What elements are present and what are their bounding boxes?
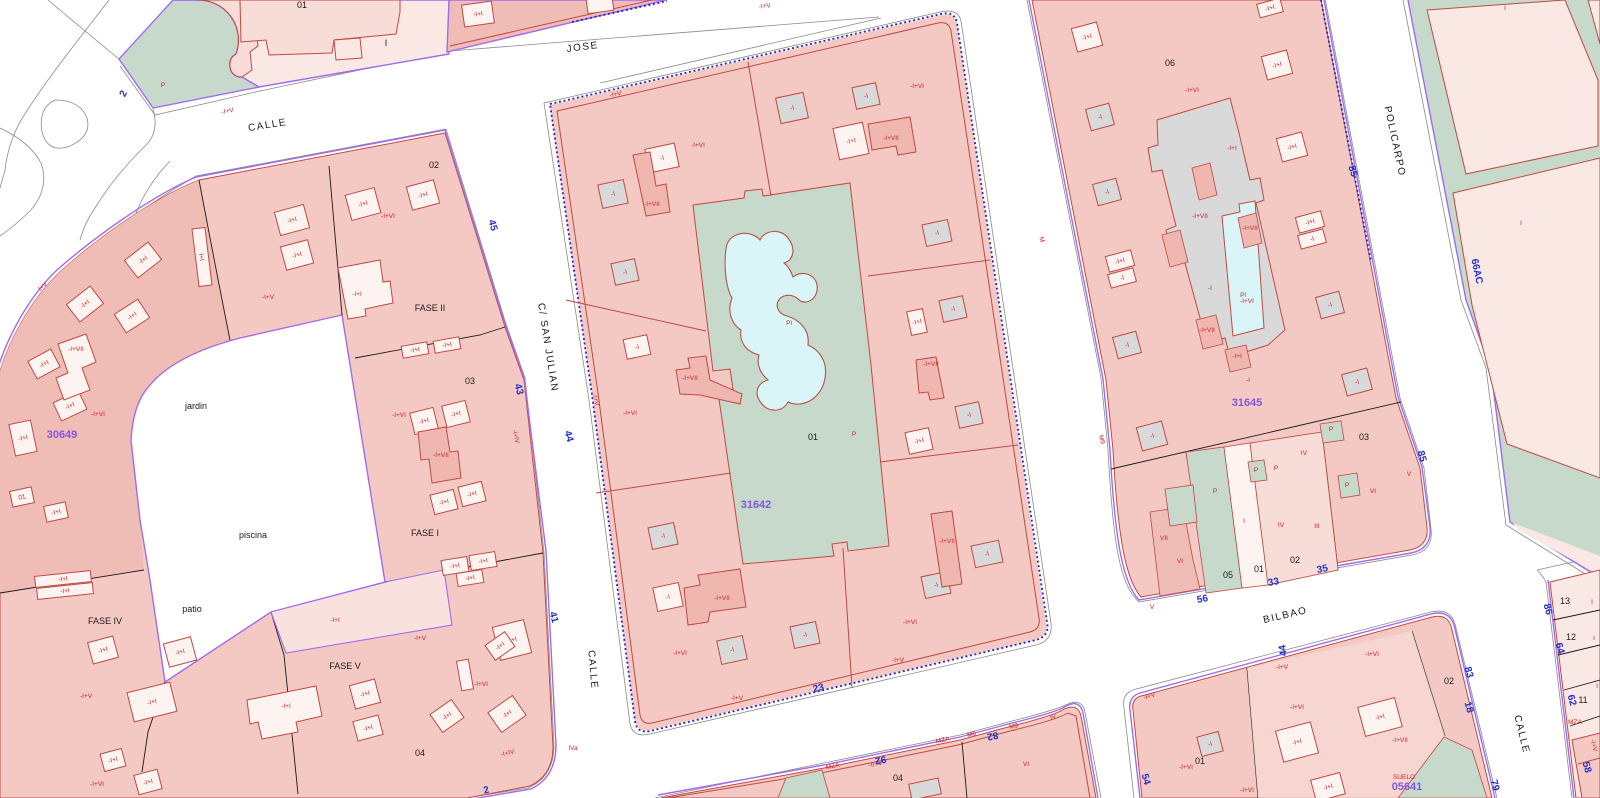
svg-text:-I+VI: -I+VI <box>1365 651 1379 658</box>
svg-text:FASE V: FASE V <box>329 661 361 671</box>
svg-text:04: 04 <box>893 773 903 783</box>
svg-text:-I+I: -I+I <box>330 617 340 624</box>
svg-text:-I+VI: -I+VI <box>1179 764 1193 771</box>
svg-text:02: 02 <box>1444 676 1454 686</box>
svg-text:04: 04 <box>415 748 425 758</box>
svg-text:05641: 05641 <box>1392 781 1423 793</box>
svg-text:-I+VI: -I+VI <box>381 213 395 220</box>
svg-text:-I+V: -I+V <box>262 294 275 301</box>
svg-text:31645: 31645 <box>1232 397 1263 409</box>
svg-text:02: 02 <box>429 160 439 170</box>
svg-text:-I+V: -I+V <box>892 657 905 664</box>
svg-text:-I+VII: -I+VII <box>433 452 449 459</box>
svg-text:piscina: piscina <box>239 530 267 540</box>
svg-text:P: P <box>1213 488 1217 495</box>
svg-text:P: P <box>1274 465 1278 472</box>
svg-text:IV: IV <box>1301 450 1308 457</box>
svg-text:-I+VII: -I+VII <box>883 135 899 142</box>
svg-text:-I+VI: -I+VI <box>903 619 917 626</box>
svg-text:-I+VI: -I+VI <box>1185 87 1199 94</box>
svg-text:01: 01 <box>1195 756 1205 766</box>
svg-text:VI: VI <box>1177 558 1183 565</box>
svg-text:P: P <box>1345 482 1349 489</box>
svg-text:01: 01 <box>1254 564 1264 574</box>
svg-text:MZA: MZA <box>1568 719 1582 726</box>
svg-text:12: 12 <box>1566 632 1576 642</box>
svg-text:I: I <box>1504 5 1506 12</box>
svg-text:FASE I: FASE I <box>411 528 439 538</box>
svg-text:01: 01 <box>808 432 818 442</box>
svg-text:I: I <box>1243 518 1245 525</box>
svg-text:-I+VII: -I+VII <box>68 346 84 353</box>
svg-text:I: I <box>1591 599 1593 606</box>
svg-text:-I+VII: -I+VII <box>714 595 730 602</box>
svg-text:I: I <box>385 38 388 48</box>
svg-text:-I+VI: -I+VI <box>1240 787 1254 794</box>
svg-text:-I+VII: -I+VII <box>939 538 955 545</box>
svg-text:-I+VI: -I+VI <box>623 410 637 417</box>
svg-text:-I+V: -I+V <box>731 695 744 702</box>
svg-text:-I+VII: -I+VII <box>1199 327 1215 334</box>
svg-text:-I+V: -I+V <box>80 693 93 700</box>
svg-text:I: I <box>1593 635 1595 642</box>
svg-text:P: P <box>852 431 856 438</box>
svg-text:-I: -I <box>1246 377 1250 384</box>
svg-text:P: P <box>161 82 165 89</box>
svg-text:-I+VII: -I+VII <box>1242 225 1258 232</box>
svg-text:III: III <box>1314 523 1320 530</box>
svg-text:-I+VI: -I+VI <box>673 650 687 657</box>
svg-text:-I+VI: -I+VI <box>1290 704 1304 711</box>
svg-text:-I+VI: -I+VI <box>90 781 104 788</box>
svg-text:-I+V: -I+V <box>1276 664 1289 671</box>
svg-text:I: I <box>1520 220 1522 227</box>
svg-text:jardin: jardin <box>184 401 207 411</box>
svg-text:VI: VI <box>1370 488 1376 495</box>
svg-text:P: P <box>1329 426 1333 433</box>
svg-text:Pl: Pl <box>1240 292 1246 299</box>
svg-text:patio: patio <box>182 604 202 614</box>
svg-text:VII: VII <box>1160 535 1168 542</box>
svg-text:31642: 31642 <box>741 499 772 511</box>
svg-text:30649: 30649 <box>47 429 78 441</box>
svg-text:-I+VII: -I+VII <box>644 201 660 208</box>
svg-text:-I+VII: -I+VII <box>1192 213 1208 220</box>
svg-text:-I+V: -I+V <box>414 635 427 642</box>
svg-text:11: 11 <box>1578 695 1587 705</box>
svg-text:P: P <box>1254 467 1258 474</box>
svg-text:-I+I: -I+I <box>352 291 362 298</box>
svg-text:V: V <box>1150 604 1155 611</box>
svg-text:-I+I: -I+I <box>281 703 291 710</box>
svg-text:-I+VII: -I+VII <box>1392 737 1408 744</box>
svg-text:-I+VII: -I+VII <box>923 361 939 368</box>
svg-text:FASE IV: FASE IV <box>88 616 122 626</box>
svg-text:SUELO: SUELO <box>1393 774 1415 781</box>
svg-text:01: 01 <box>297 0 307 10</box>
svg-text:-I+VI: -I+VI <box>691 142 705 149</box>
svg-text:-I+VI: -I+VI <box>910 83 924 90</box>
svg-text:-I+VII: -I+VII <box>682 375 698 382</box>
svg-text:-I+I: -I+I <box>473 10 484 18</box>
svg-text:IV: IV <box>1278 522 1285 529</box>
svg-text:-I: -I <box>1208 285 1212 292</box>
svg-text:-I+VI: -I+VI <box>392 412 406 419</box>
svg-text:Pl: Pl <box>786 320 792 327</box>
svg-text:06: 06 <box>1165 58 1175 68</box>
svg-text:02: 02 <box>1290 555 1300 565</box>
svg-text:FASE II: FASE II <box>415 303 446 313</box>
svg-text:05: 05 <box>1223 570 1233 580</box>
svg-text:03: 03 <box>1359 432 1369 442</box>
svg-text:-I+VI: -I+VI <box>1240 298 1254 305</box>
svg-text:-I+VI: -I+VI <box>91 411 105 418</box>
svg-text:13: 13 <box>1560 596 1570 606</box>
svg-text:-I+I: -I+I <box>60 587 70 595</box>
svg-text:-I+VI: -I+VI <box>474 681 488 688</box>
svg-text:VI: VI <box>1023 761 1029 768</box>
svg-text:-I+I: -I+I <box>1232 353 1242 360</box>
svg-text:03: 03 <box>465 376 475 386</box>
svg-text:V: V <box>1407 471 1412 478</box>
svg-text:-I+I: -I+I <box>58 575 68 583</box>
svg-text:I: I <box>1596 683 1598 690</box>
svg-text:I+I: I+I <box>197 253 205 261</box>
svg-text:IVa: IVa <box>568 745 578 752</box>
svg-text:-I+I: -I+I <box>1227 145 1237 152</box>
